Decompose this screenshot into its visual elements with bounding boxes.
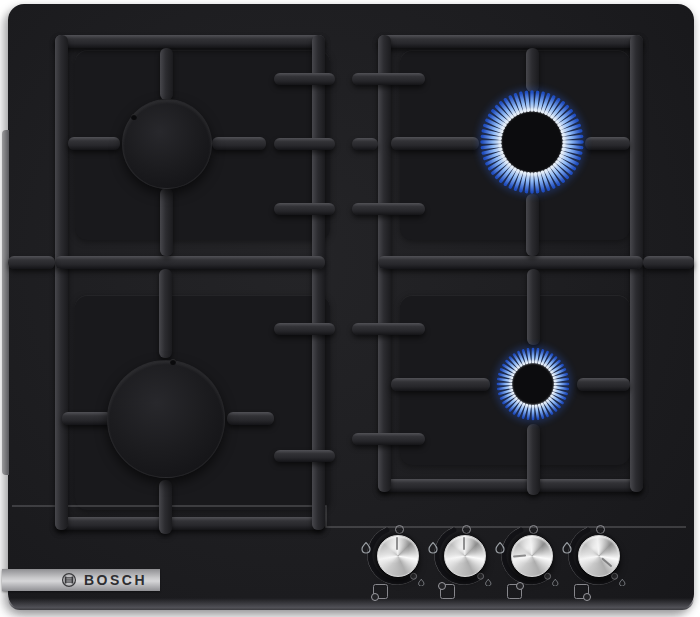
- pan-support-bar: [55, 256, 325, 269]
- burner-cap-front-left: [107, 360, 225, 478]
- pan-support-bar: [274, 450, 335, 462]
- pan-support-bar: [274, 138, 335, 150]
- pan-support-bar: [159, 480, 172, 534]
- pan-support-bar: [159, 269, 172, 358]
- knob-pointer: [396, 537, 398, 550]
- product-photo: BOSCH: [0, 0, 700, 617]
- pan-support-bar: [577, 378, 630, 391]
- burner-position-dot: [438, 582, 446, 590]
- pan-support-bar: [391, 137, 479, 150]
- pan-support-bar: [378, 35, 643, 48]
- pan-support-bar: [55, 517, 325, 530]
- burner-cap-back-left: [122, 99, 212, 189]
- burner-position-icon-bottom-left: [373, 584, 388, 599]
- pan-support-bar: [160, 48, 173, 100]
- burner-position-icon-top-right: [507, 584, 522, 599]
- pan-support-bar: [526, 194, 539, 256]
- burner-position-icon-bottom-right: [574, 584, 589, 599]
- brand-wordmark: BOSCH: [84, 572, 147, 588]
- pan-support-bar: [527, 269, 540, 345]
- burner-position-icon-top-left: [440, 584, 455, 599]
- pan-support-bar: [352, 433, 425, 445]
- pan-support-bar: [274, 203, 335, 215]
- pan-support-bar: [8, 256, 55, 269]
- hob-left-side-edge: [2, 130, 9, 475]
- pan-support-bar: [378, 256, 643, 269]
- pan-support-bar: [227, 412, 274, 425]
- small-flame-icon: [485, 579, 492, 586]
- large-flame-icon: [428, 542, 438, 554]
- pan-support-bar: [378, 479, 643, 492]
- pan-support-bar: [352, 203, 425, 215]
- pan-support-bar: [62, 412, 112, 425]
- hob-front-bevel: [8, 598, 694, 610]
- knob-pointer: [463, 537, 465, 550]
- pan-support-bar: [274, 73, 335, 85]
- bosch-armature-icon: [61, 572, 77, 588]
- pan-support-bar: [160, 188, 173, 256]
- pan-support-bar: [526, 48, 539, 92]
- pan-support-bar: [55, 35, 68, 530]
- pan-support-bar: [527, 424, 540, 495]
- pan-support-bar: [585, 137, 630, 150]
- ignition-electrode: [170, 359, 176, 365]
- small-flame-icon: [418, 579, 425, 586]
- small-flame-icon: [619, 579, 626, 586]
- pan-support-bar: [274, 323, 335, 335]
- small-flame-icon: [552, 579, 559, 586]
- knob-face[interactable]: [444, 535, 486, 577]
- pan-support-bar: [352, 73, 425, 85]
- knob-face[interactable]: [578, 535, 620, 577]
- burner-position-dot: [583, 593, 591, 601]
- pan-support-bar: [212, 137, 266, 150]
- pan-support-bar: [643, 256, 694, 269]
- large-flame-icon: [361, 542, 371, 554]
- pan-support-bar: [68, 137, 120, 150]
- pan-support-bar: [55, 35, 325, 48]
- control-strip: BOSCH: [2, 569, 160, 591]
- knob-face[interactable]: [377, 535, 419, 577]
- burner-position-dot: [516, 582, 524, 590]
- ignition-electrode: [131, 114, 137, 120]
- large-flame-icon: [562, 542, 572, 554]
- large-flame-icon: [495, 542, 505, 554]
- pan-support-bar: [352, 323, 425, 335]
- pan-support-bar: [391, 378, 490, 391]
- burner-position-dot: [371, 593, 379, 601]
- pan-support-bar: [352, 138, 378, 150]
